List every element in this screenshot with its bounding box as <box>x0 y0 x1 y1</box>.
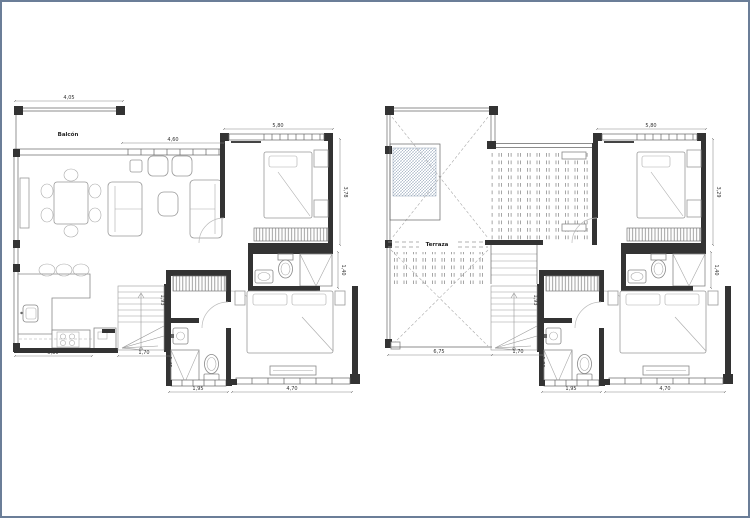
dim-hall-lower: 1,80 <box>539 356 545 367</box>
dim-living-window: 4,60 <box>167 137 178 143</box>
double-bed <box>235 291 345 353</box>
upper-floor-plan: Terraza 5,80 <box>385 106 733 392</box>
double-bed <box>264 150 328 218</box>
dim-stairs: 1,70 <box>138 350 149 356</box>
dim-hall-upper: 1,93 <box>532 294 538 305</box>
dim-ensuite-shower: 1,40 <box>713 264 719 275</box>
dim-kitchen: 5,80 <box>47 350 58 356</box>
bathroom-block-upper <box>539 270 605 386</box>
dim-balcony: 4,05 <box>63 95 74 101</box>
pergola <box>485 143 597 284</box>
ensuite-sink <box>255 270 273 283</box>
sofa-set <box>108 156 222 238</box>
kitchen <box>14 264 118 353</box>
ensuite-toilet <box>278 254 293 278</box>
dim-terrace: 6,75 <box>433 349 444 355</box>
terrace-label: Terraza <box>426 242 449 248</box>
balcony-label: Balcón <box>58 131 79 138</box>
dining-set <box>41 169 101 237</box>
dim-bedroom2-window: 4,70 <box>659 386 670 392</box>
dim-hall-lower: 1,45 <box>166 356 172 367</box>
dim-hall-upper: 1,93 <box>159 294 165 305</box>
washbasin <box>171 328 188 344</box>
dim-bedroom1-width: 5,80 <box>272 123 283 129</box>
dim-bedroom1-height: 3,78 <box>342 186 348 197</box>
ensuite-shower <box>300 254 332 286</box>
dim-bedroom2-window: 4,70 <box>286 386 297 392</box>
dim-bath-window: 1,95 <box>565 386 576 392</box>
dim-bedroom1-width: 5,80 <box>645 123 656 129</box>
toilet <box>204 355 219 382</box>
dim-stairs: 1,70 <box>512 349 523 355</box>
dim-bedroom1-height: 3,29 <box>715 186 721 197</box>
ground-floor-plan: Balcón <box>13 95 360 392</box>
dim-bath-window: 1,95 <box>192 386 203 392</box>
closet <box>173 276 226 291</box>
floor-plan-sheet: Balcón <box>0 0 750 518</box>
shower <box>171 350 199 382</box>
wardrobe <box>254 228 328 241</box>
deck-marks <box>389 252 486 284</box>
bench <box>270 366 316 375</box>
dim-ensuite-shower: 1,40 <box>340 264 346 275</box>
floor-plans-drawing: Balcón <box>2 2 750 518</box>
bathroom-block <box>166 270 232 386</box>
balcony: Balcón <box>14 106 125 149</box>
